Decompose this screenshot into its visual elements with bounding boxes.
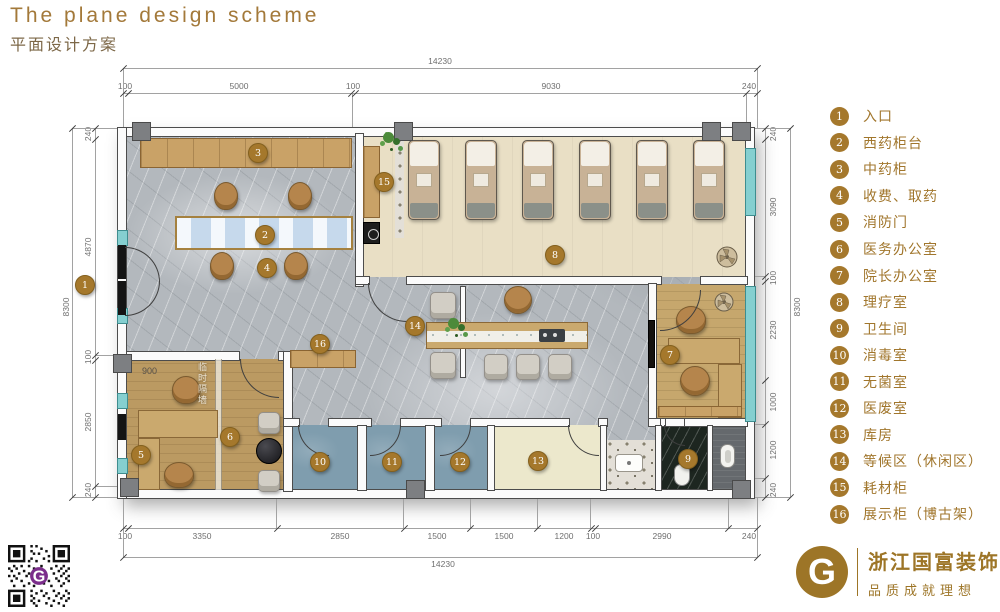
dim-label: 1000: [768, 393, 778, 412]
dim-label: 2990: [653, 531, 672, 541]
dim-line: [753, 128, 790, 129]
plan-marker-6: 6: [220, 427, 240, 447]
dim-line: [757, 68, 758, 128]
dim-line: [537, 497, 538, 528]
therapy-bed: [408, 140, 440, 220]
dim-line: [790, 128, 791, 497]
dim-tick: [787, 494, 794, 501]
dim-label: 3350: [193, 531, 212, 541]
glass-panel: [117, 230, 128, 246]
plan-marker-8: 8: [545, 245, 565, 265]
legend-label: 医务办公室: [863, 239, 938, 259]
dim-line: [72, 128, 73, 497]
wall-room-divider: [425, 425, 435, 491]
plan-marker-5: 5: [131, 445, 151, 465]
legend-num: 16: [830, 505, 849, 524]
rattan-chair: [504, 286, 532, 314]
therapy-bed: [522, 140, 554, 220]
dim-label: 2230: [768, 321, 778, 340]
structural-column: [702, 122, 721, 141]
fire-door: [118, 414, 126, 440]
legend-num: 11: [830, 372, 849, 391]
dim-line: [123, 93, 757, 94]
wall-toilet-top: [684, 418, 748, 427]
company-logo-icon: G: [795, 545, 849, 599]
dim-bottom-overall: 14230: [431, 559, 455, 569]
wall-room-divider: [357, 425, 367, 491]
legend-label: 理疗室: [863, 292, 908, 312]
washbasin: [615, 454, 643, 472]
legend-item: 9卫生间: [830, 315, 983, 342]
dim-line: [123, 528, 757, 529]
dim-line: [276, 497, 277, 528]
legend-num: 10: [830, 346, 849, 365]
svg-text:G: G: [808, 551, 836, 592]
legend-item: 1入口: [830, 103, 983, 130]
company-name: 浙江国富装饰: [868, 546, 1000, 575]
company-slogan: 品质成就理想: [868, 580, 1000, 599]
dim-label: 240: [83, 127, 93, 141]
legend-num: 4: [830, 186, 849, 205]
herb-cabinet: [140, 138, 352, 168]
legend-item: 3中药柜: [830, 156, 983, 183]
dim-label: 1500: [428, 531, 447, 541]
structural-column: [732, 122, 751, 141]
dim-label: 1200: [555, 531, 574, 541]
legend-label: 西药柜台: [863, 133, 923, 153]
glass-panel: [745, 286, 756, 422]
legend-num: 1: [830, 107, 849, 126]
plan-marker-3: 3: [248, 143, 268, 163]
dim-tick: [754, 554, 761, 561]
legend: 1入口 2西药柜台 3中药柜 4收费、取药 5消防门 6医务办公室 7院长办公室…: [830, 103, 983, 528]
qr-code: G: [8, 545, 70, 607]
legend-num: 2: [830, 133, 849, 152]
legend-num: 3: [830, 160, 849, 179]
partition-width-label: 900: [142, 366, 157, 376]
legend-label: 医废室: [863, 398, 908, 418]
legend-label: 无菌室: [863, 372, 908, 392]
dim-label: 5000: [230, 81, 249, 91]
wall-seg: [700, 276, 748, 285]
wall-therapy-bottom: [406, 276, 662, 285]
wall-room-divider: [707, 425, 713, 491]
glass-panel: [117, 458, 128, 474]
wall-seg: [400, 418, 442, 427]
legend-item: 16展示柜（博古架）: [830, 501, 983, 528]
glass-panel: [117, 393, 128, 409]
glass-panel: [745, 148, 756, 216]
legend-num: 9: [830, 319, 849, 338]
structural-column: [120, 478, 139, 497]
chair: [214, 182, 238, 210]
dim-label: 1500: [495, 531, 514, 541]
plan-marker-1: 1: [75, 275, 95, 295]
legend-item: 11无菌室: [830, 368, 983, 395]
plan-marker-11: 11: [382, 452, 402, 472]
therapy-bed: [693, 140, 725, 220]
dim-line: [403, 497, 404, 528]
dim-left-overall: 8300: [61, 298, 71, 317]
dim-label: 4870: [83, 238, 93, 257]
legend-item: 2西药柜台: [830, 130, 983, 157]
legend-label: 院长办公室: [863, 266, 938, 286]
legend-num: 5: [830, 213, 849, 232]
dim-label: 100: [118, 531, 132, 541]
dim-line: [728, 497, 729, 528]
feature-wall: [648, 320, 655, 368]
chair: [680, 366, 710, 396]
dim-top-overall: 14230: [428, 56, 452, 66]
plan-marker-10: 10: [310, 452, 330, 472]
dim-line: [123, 557, 757, 558]
plan-marker-15: 15: [374, 172, 394, 192]
brand-divider: [857, 548, 858, 596]
dim-label: 240: [768, 127, 778, 141]
legend-label: 耗材柜: [863, 478, 908, 498]
plan-marker-7: 7: [660, 345, 680, 365]
legend-item: 4收费、取药: [830, 183, 983, 210]
wall-office-top: [126, 351, 240, 361]
chair: [258, 470, 280, 492]
legend-label: 消防门: [863, 212, 908, 232]
chair: [516, 354, 540, 380]
plant: [448, 318, 459, 329]
ceiling-fan-icon: [714, 292, 734, 312]
dim-line: [765, 128, 766, 497]
legend-item: 7院长办公室: [830, 262, 983, 289]
structural-column: [113, 354, 132, 373]
legend-item: 10消毒室: [830, 342, 983, 369]
legend-item: 8理疗室: [830, 289, 983, 316]
plan-marker-12: 12: [450, 452, 470, 472]
wall-room-divider: [600, 425, 607, 491]
dim-line: [123, 68, 124, 128]
chair: [288, 182, 312, 210]
page-title-en: The plane design scheme: [10, 4, 320, 28]
wall-seg: [470, 418, 570, 427]
qr-logo-letter: G: [33, 568, 46, 586]
therapy-bed: [636, 140, 668, 220]
plan-marker-13: 13: [528, 451, 548, 471]
dim-line: [753, 497, 790, 498]
office-desk: [138, 410, 218, 438]
ceiling-fan-icon: [716, 246, 738, 268]
legend-label: 收费、取药: [863, 186, 938, 206]
dim-line: [352, 93, 353, 128]
dim-label: 100: [768, 271, 778, 285]
dim-line: [95, 128, 96, 497]
therapy-bed: [579, 140, 611, 220]
legend-num: 15: [830, 478, 849, 497]
dim-line: [590, 497, 591, 528]
chair: [210, 252, 234, 280]
structural-column: [394, 122, 413, 141]
legend-label: 库房: [863, 425, 893, 445]
dim-label: 1200: [768, 441, 778, 460]
dim-label: 240: [83, 483, 93, 497]
legend-item: 13库房: [830, 422, 983, 449]
floor-plan: 900 临时隔墙: [118, 128, 753, 497]
chair: [548, 354, 572, 380]
dim-label: 100: [586, 531, 600, 541]
dim-label: 9030: [542, 81, 561, 91]
legend-item: 6医务办公室: [830, 236, 983, 263]
structural-column: [406, 480, 425, 499]
chair: [430, 292, 456, 319]
side-table: [256, 438, 282, 464]
legend-num: 6: [830, 240, 849, 259]
wall-top: [117, 127, 754, 137]
dim-line: [95, 486, 118, 487]
dim-label: 2850: [83, 413, 93, 432]
legend-item: 12医废室: [830, 395, 983, 422]
legend-label: 展示柜（博古架）: [863, 504, 983, 524]
partition-text-label: 临时隔墙: [196, 362, 209, 406]
legend-item: 14等候区（休闲区）: [830, 448, 983, 475]
dim-line: [470, 497, 471, 528]
dim-label: 3090: [768, 198, 778, 217]
plan-marker-14: 14: [405, 316, 425, 336]
legend-num: 7: [830, 266, 849, 285]
chair: [284, 252, 308, 280]
chair: [164, 462, 194, 488]
legend-num: 14: [830, 452, 849, 471]
page-title-zh: 平面设计方案: [10, 31, 118, 55]
dim-label: 240: [768, 483, 778, 497]
sink-unit: [363, 222, 380, 244]
low-cabinet: [658, 406, 742, 417]
urinal: [720, 444, 735, 468]
dim-right-overall: 8300: [792, 298, 802, 317]
legend-label: 卫生间: [863, 319, 908, 339]
structural-column: [732, 480, 751, 499]
legend-num: 13: [830, 425, 849, 444]
legend-label: 中药柜: [863, 159, 908, 179]
plan-marker-16: 16: [310, 334, 330, 354]
legend-label: 消毒室: [863, 345, 908, 365]
dim-label: 240: [742, 531, 756, 541]
legend-label: 入口: [863, 106, 893, 126]
legend-num: 8: [830, 293, 849, 312]
plan-marker-4: 4: [257, 258, 277, 278]
wall-room-divider: [487, 425, 495, 491]
chair: [430, 352, 456, 379]
chair: [258, 412, 280, 434]
dim-label: 2850: [331, 531, 350, 541]
dim-line: [123, 68, 757, 69]
wall-room-divider: [655, 425, 662, 491]
structural-column: [132, 122, 151, 141]
legend-num: 12: [830, 399, 849, 418]
chair: [484, 354, 508, 380]
company-branding: G 浙江国富装饰 品质成就理想: [795, 545, 1000, 599]
plant: [383, 132, 394, 143]
plan-marker-2: 2: [255, 225, 275, 245]
vestibule-strip: [395, 136, 404, 238]
legend-label: 等候区（休闲区）: [863, 451, 983, 471]
poster: The plane design scheme 平面设计方案 14230 100…: [0, 0, 1000, 612]
legend-item: 15耗材柜: [830, 475, 983, 502]
legend-item: 5消防门: [830, 209, 983, 236]
plan-marker-9: 9: [678, 449, 698, 469]
therapy-bed: [465, 140, 497, 220]
